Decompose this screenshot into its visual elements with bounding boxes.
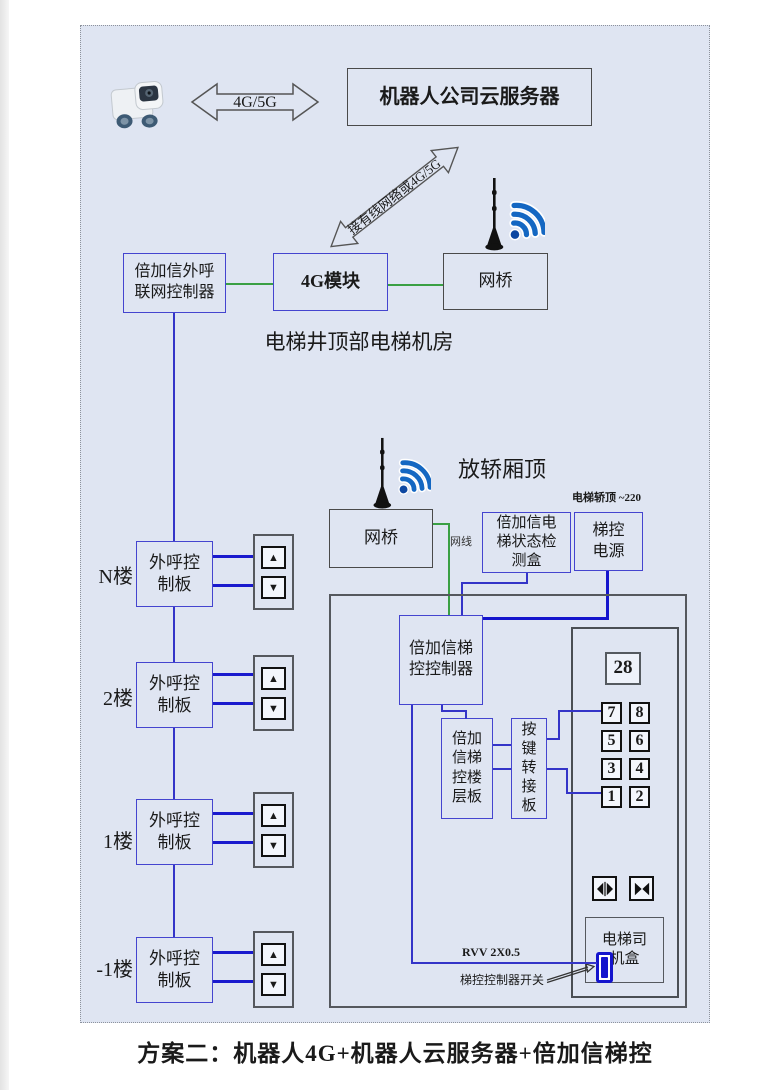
floor-display: 28 [605,652,641,685]
call-down-button-2[interactable]: ▼ [261,697,286,720]
up-arrow-icon: ▲ [268,810,279,822]
door-open-button[interactable] [592,876,617,901]
wire-adapter-btn1-b [566,768,568,794]
wire-n-down [213,584,253,587]
wifi-icon [499,198,545,244]
wire-ctrl-switch-h [411,962,597,964]
keypad-button-7[interactable]: 7 [601,702,622,724]
wire-1-up [213,812,253,815]
floor-board-box: 倍加信梯控楼层板 [441,718,493,819]
wire-ctrl-board-3 [465,710,467,719]
down-arrow-icon: ▼ [268,979,279,991]
outcall-board-m1: 外呼控制板 [136,937,213,1003]
outcall-board-1: 外呼控制板 [136,799,213,865]
wire-1-down [213,841,253,844]
wire-status-left [461,582,527,584]
bridge-box-car-top: 网桥 [329,509,433,568]
wire-adapter-btn7-b [558,710,560,740]
wire-adapter-btn1-c [566,792,601,794]
machine-room-section-label: 电梯井顶部电梯机房 [239,330,479,355]
page-edge-shade [0,0,9,1090]
up-arrow-icon: ▲ [268,949,279,961]
cloud-server-box: 机器人公司云服务器 [347,68,592,126]
call-down-button-n[interactable]: ▼ [261,576,286,599]
car-top-section-label: 放轿厢顶 [458,457,573,483]
wire-ctrl-switch-v [411,705,413,964]
keypad-button-2[interactable]: 2 [629,786,650,808]
diagram-caption: 方案二：机器人4G+机器人云服务器+倍加信梯控 [80,1034,710,1068]
elevator-control-controller-box: 倍加信梯控控制器 [399,615,483,705]
wifi-icon-car-top [389,456,431,498]
wire-chain-2-1 [173,727,175,799]
call-up-button-1[interactable]: ▲ [261,804,286,827]
wire-controller-4g [226,283,273,285]
floor-label-m1: -1楼 [78,958,133,982]
wire-2-up [213,673,253,676]
wire-spec-label: RVV 2X0.5 [462,945,542,959]
call-down-button-1[interactable]: ▼ [261,834,286,857]
network-cable-label: 网线 [450,536,472,549]
wire-chain-n-2 [173,607,175,662]
keypad-button-4[interactable]: 4 [629,758,650,780]
wire-ctrl-board-2 [441,710,467,712]
wire-outcall-chain-top [173,313,175,541]
floor-label-2: 2楼 [83,687,133,711]
call-up-button-n[interactable]: ▲ [261,546,286,569]
car-top-power-note: 电梯轿顶 ~220 [572,492,662,505]
call-up-button-2[interactable]: ▲ [261,667,286,690]
bridge-box-machine-room: 网桥 [443,253,548,310]
wire-board-adapter-1 [493,744,511,746]
wire-adapter-btn7-c [558,710,601,712]
switch-pointer-arrow [544,956,598,984]
outcall-network-controller-box: 倍加信外呼联网控制器 [123,253,226,313]
module-4g-box: 4G模块 [273,253,388,311]
floor-label-1: 1楼 [83,830,133,854]
switch-label: 梯控控制器开关 [460,973,555,987]
keypad-button-3[interactable]: 3 [601,758,622,780]
door-open-icon [596,881,614,897]
call-up-button-m1[interactable]: ▲ [261,943,286,966]
keypad-button-1[interactable]: 1 [601,786,622,808]
down-arrow-icon: ▼ [268,703,279,715]
wire-board-adapter-2 [493,768,511,770]
keypad-button-6[interactable]: 6 [629,730,650,752]
delivery-robot-icon [106,76,170,130]
elevator-status-box: 倍加信电梯状态检测盒 [482,512,571,573]
wire-m1-down [213,980,253,983]
door-close-icon [633,881,651,897]
wire-n-up [213,555,253,558]
wire-2-down [213,702,253,705]
controller-switch[interactable] [596,952,613,983]
down-arrow-icon: ▼ [268,582,279,594]
key-adapter-box: 按键转接板 [511,718,547,819]
link-4g5g-label: 4G/5G [190,93,320,112]
up-arrow-icon: ▲ [268,673,279,685]
wire-chain-1-m1 [173,865,175,937]
robot-cloud-link-arrow: 4G/5G [190,80,320,124]
up-arrow-icon: ▲ [268,552,279,564]
outcall-board-2: 外呼控制板 [136,662,213,728]
outcall-board-n: 外呼控制板 [136,541,213,607]
door-close-button[interactable] [629,876,654,901]
elevator-power-box: 梯控电源 [574,512,643,571]
wire-4g-bridge [388,284,443,286]
diagram-canvas: 4G/5G 机器人公司云服务器 接有线网络或4G/5G [0,0,769,1090]
call-down-button-m1[interactable]: ▼ [261,973,286,996]
wire-adapter-btn1-a [547,768,568,770]
keypad-button-8[interactable]: 8 [629,702,650,724]
down-arrow-icon: ▼ [268,840,279,852]
keypad-button-5[interactable]: 5 [601,730,622,752]
floor-label-n: N楼 [83,565,133,589]
wire-m1-up [213,951,253,954]
